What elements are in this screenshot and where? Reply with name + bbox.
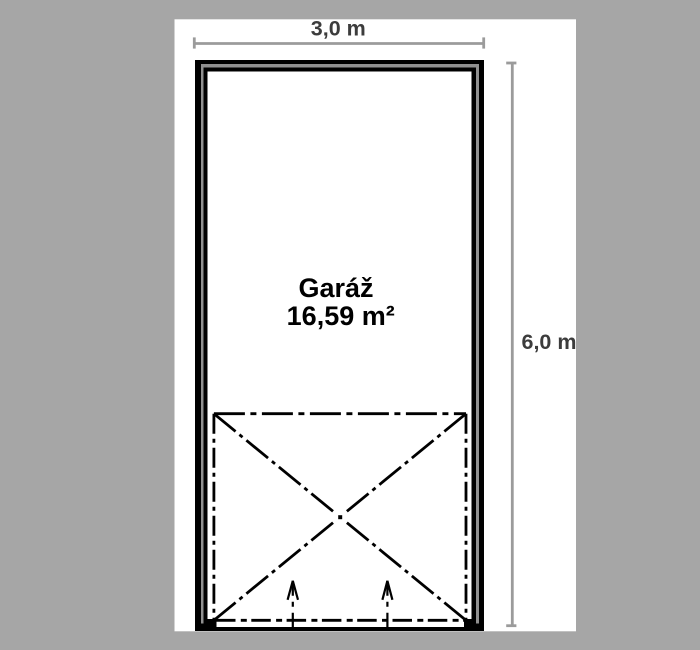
svg-text:6,0 m: 6,0 m [522, 330, 577, 354]
svg-text:16,59 m²: 16,59 m² [287, 301, 395, 331]
svg-text:Garáž: Garáž [298, 273, 373, 303]
svg-text:3,0 m: 3,0 m [311, 17, 366, 41]
